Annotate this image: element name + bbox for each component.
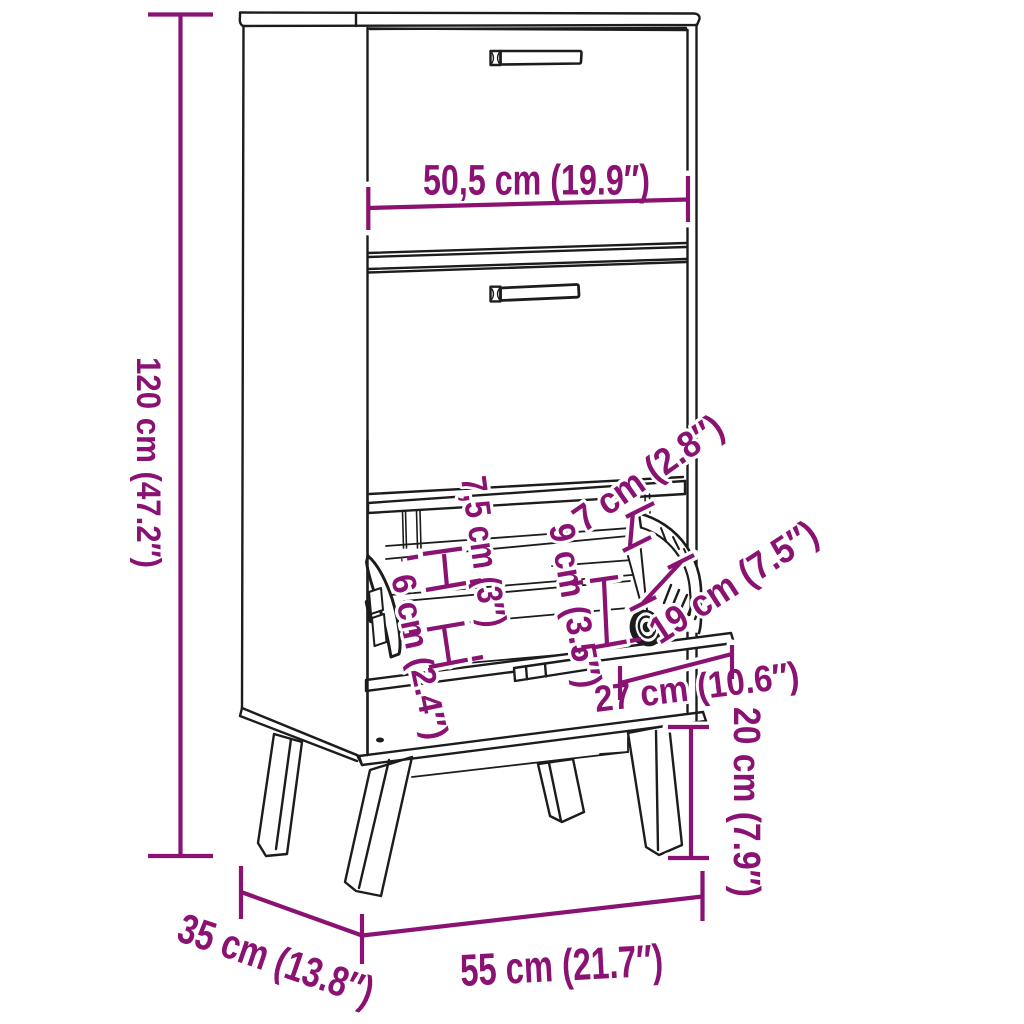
svg-text:20 cm (7.9″): 20 cm (7.9″) — [725, 707, 767, 897]
svg-text:50,5 cm (19.9″): 50,5 cm (19.9″) — [423, 157, 650, 205]
svg-text:55 cm (21.7″): 55 cm (21.7″) — [459, 934, 664, 996]
svg-text:120 cm (47.2″): 120 cm (47.2″) — [129, 357, 167, 568]
